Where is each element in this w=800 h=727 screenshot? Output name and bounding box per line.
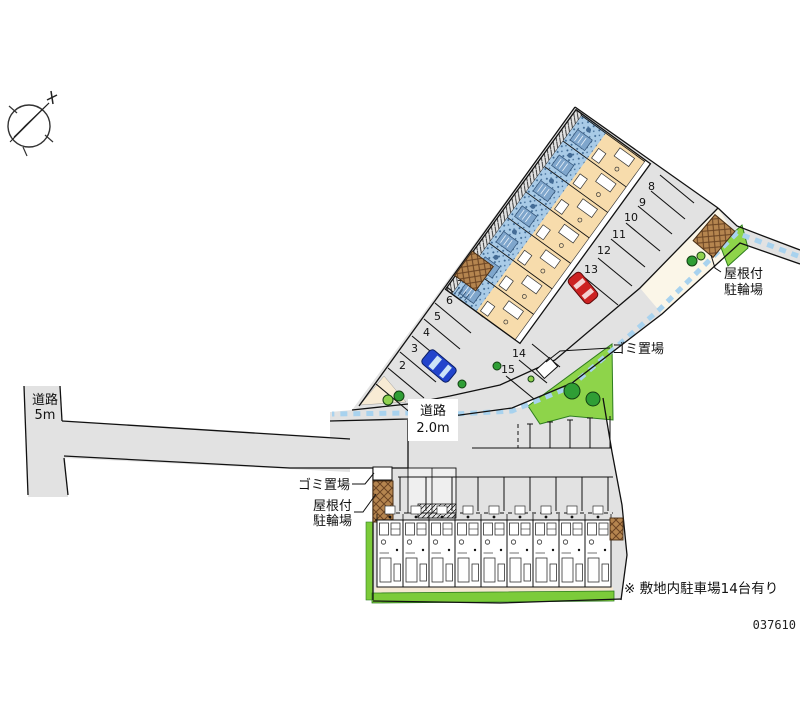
right-bike-box xyxy=(610,518,623,540)
stall-number: 14 xyxy=(512,347,526,360)
stall-number: 8 xyxy=(648,180,655,193)
stall-number: 13 xyxy=(584,263,598,276)
bike-lower-text1: 屋根付 xyxy=(313,499,352,514)
stall-number: 15 xyxy=(501,363,515,376)
stall-number: 11 xyxy=(612,228,626,241)
bike-upper-text2: 駐輪場 xyxy=(724,282,763,298)
parking-note: ※ 敷地内駐車場14台有り xyxy=(624,581,778,597)
garbage-upper-text: ゴミ置場 xyxy=(612,341,664,357)
west-road-width: 5m xyxy=(35,408,56,423)
west-green-strip xyxy=(366,522,373,600)
access-road-surface xyxy=(58,420,350,472)
stall-number: 6 xyxy=(446,294,453,307)
garbage-lower-text: ゴミ置場 xyxy=(298,477,350,493)
garbage-lower-label: ゴミ置場 xyxy=(298,473,374,493)
lower-garbage-area xyxy=(373,467,392,480)
stall-number: 3 xyxy=(411,342,418,355)
stall-number: 9 xyxy=(639,196,646,209)
compass-icon xyxy=(8,91,57,156)
stall-number: 4 xyxy=(423,326,430,339)
site-plan-map: 2 3 4 5 6 7 8 9 10 11 12 13 14 15 xyxy=(0,0,800,727)
stall-number: 12 xyxy=(597,244,611,257)
west-road-name: 道路 xyxy=(32,392,58,408)
plan-number: 037610 xyxy=(753,618,796,632)
west-road-label: 道路 5m xyxy=(32,392,58,423)
stall-number: 2 xyxy=(399,359,406,372)
stall-number: 10 xyxy=(624,211,638,224)
north-road-width: 2.0m xyxy=(416,421,449,436)
bike-upper-text1: 屋根付 xyxy=(724,267,763,282)
north-road-name: 道路 xyxy=(420,403,446,419)
bike-lower-text2: 駐輪場 xyxy=(313,513,352,529)
stall-number: 5 xyxy=(434,310,441,323)
north-road-label: 道路 2.0m xyxy=(408,399,458,441)
site-plan-page: 2 3 4 5 6 7 8 9 10 11 12 13 14 15 xyxy=(0,0,800,727)
